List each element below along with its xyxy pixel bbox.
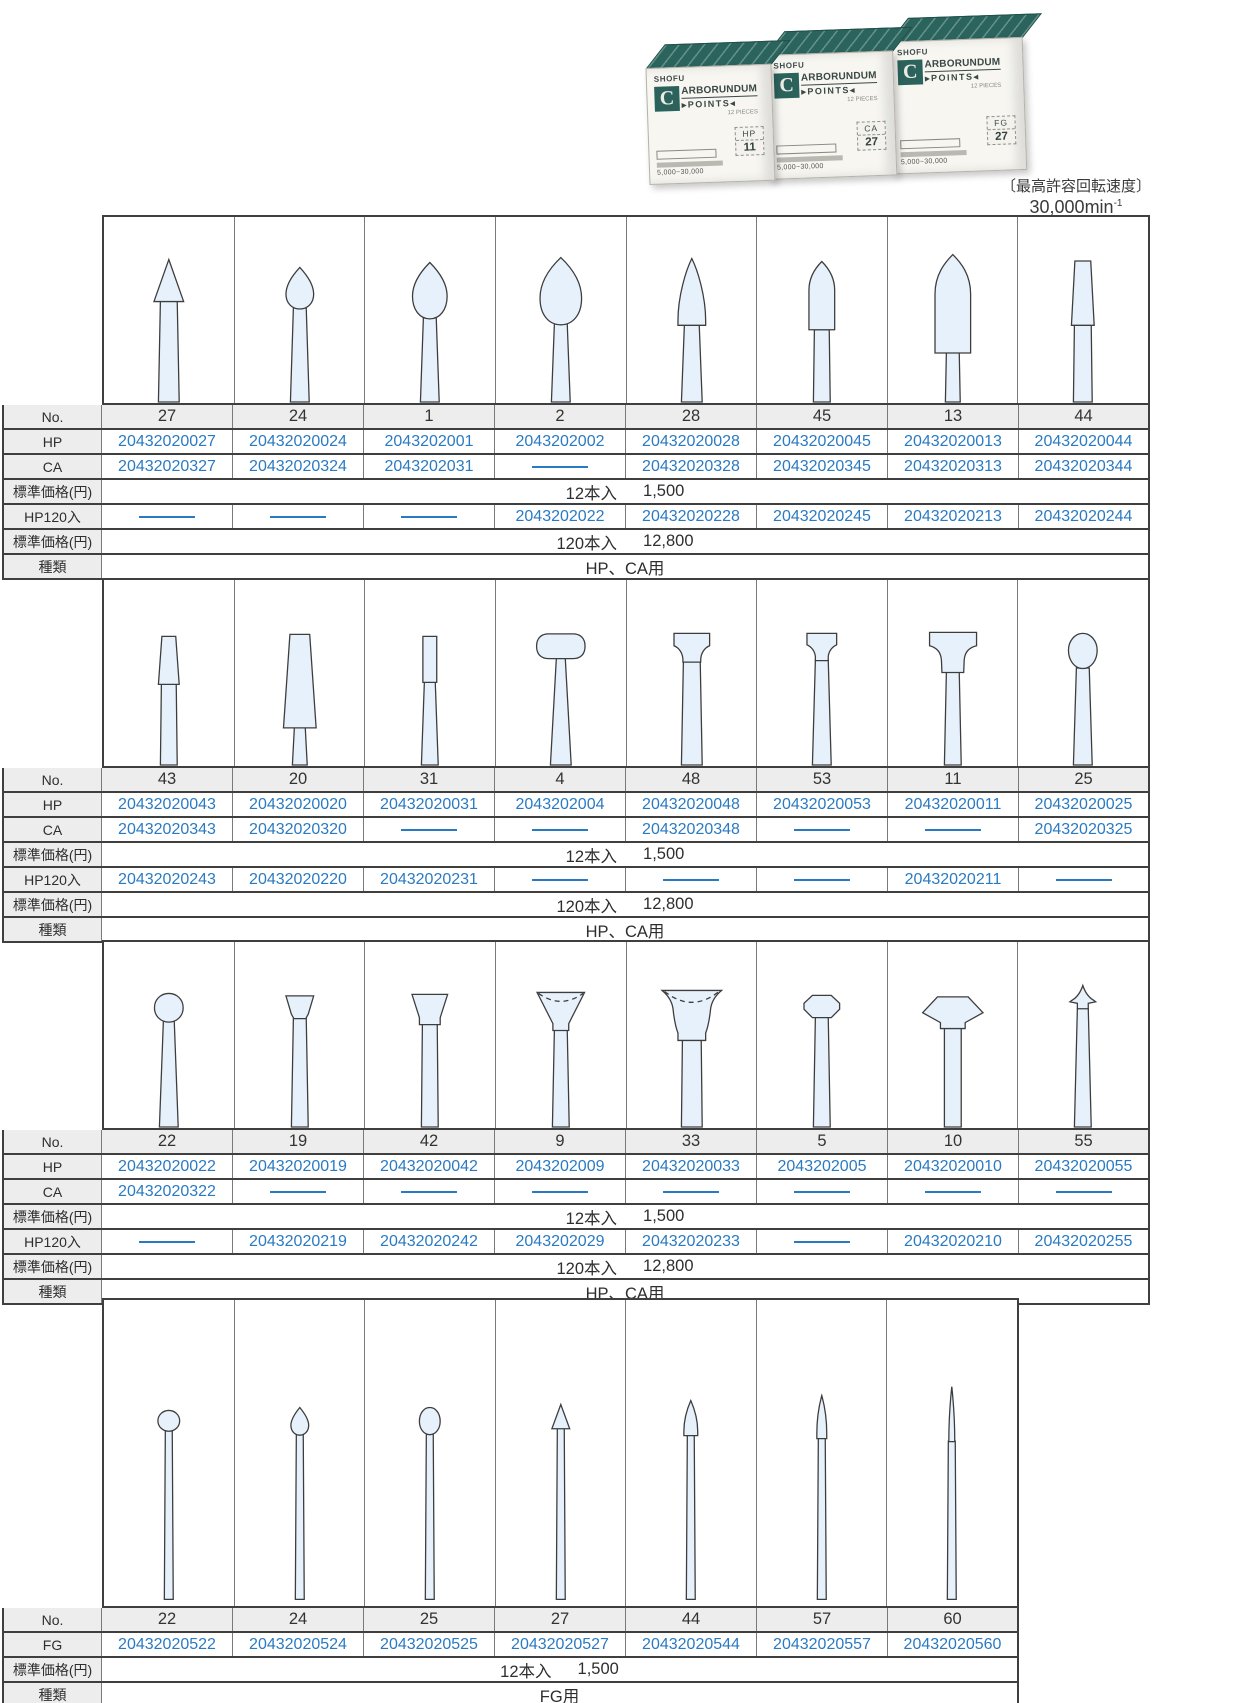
hp-code-cell: 20432020043 xyxy=(102,793,233,816)
hp120-code-cell: 20432020211 xyxy=(888,868,1019,891)
shape-cell xyxy=(626,1300,757,1606)
no-cell: 9 xyxy=(495,1130,626,1153)
kind-row-text: HP、CA用 xyxy=(586,918,665,942)
hp-code-cell: 20432020045 xyxy=(757,430,888,453)
hp120-code[interactable]: 20432020228 xyxy=(642,508,740,526)
ca-code-cell xyxy=(757,1180,888,1203)
no-cell: 10 xyxy=(888,1130,1019,1153)
row-label: 標準価格(円) xyxy=(2,530,102,553)
hp-code[interactable]: 20432020044 xyxy=(1035,433,1133,451)
shape-cell xyxy=(496,1300,627,1606)
price-12: 12本入1,500 xyxy=(102,1205,1150,1228)
row-label: HP xyxy=(2,430,102,453)
row-label: HP120入 xyxy=(2,1230,102,1253)
table-row: HP120入2043202021920432020242204320202920… xyxy=(2,1230,1150,1255)
hp120-code-cell: 20432020233 xyxy=(626,1230,757,1253)
table-row: 標準価格(円)12本入1,500 xyxy=(2,480,1150,505)
hp-code[interactable]: 20432020011 xyxy=(905,796,1002,814)
shape-cell xyxy=(235,217,366,403)
row-label: 標準価格(円) xyxy=(2,1205,102,1228)
hp-code-cell: 20432020033 xyxy=(626,1155,757,1178)
fg-code[interactable]: 20432020544 xyxy=(642,1636,740,1654)
shape-cell xyxy=(627,942,758,1128)
shape-cell xyxy=(104,1300,235,1606)
fgegg25-bur-icon xyxy=(365,1300,495,1606)
no-cell: 20 xyxy=(233,768,364,791)
price-120-text: 12,800 xyxy=(643,895,693,914)
hp-code-cell: 2043202009 xyxy=(495,1155,626,1178)
fg-code-cell: 20432020527 xyxy=(495,1633,626,1656)
ca-code-cell xyxy=(495,818,626,841)
no-cell: 57 xyxy=(757,1608,888,1631)
fgcone27-bur-icon xyxy=(496,1300,626,1606)
fgtaper57-bur-icon xyxy=(757,1300,887,1606)
bud24-bur-icon xyxy=(235,217,365,403)
shape-cell xyxy=(365,217,496,403)
hp-code[interactable]: 20432020033 xyxy=(642,1158,740,1176)
hp-code[interactable]: 20432020042 xyxy=(380,1158,478,1176)
taper44-bur-icon xyxy=(1018,217,1148,403)
hp-code-cell: 20432020044 xyxy=(1019,430,1150,453)
bud1-bur-icon xyxy=(365,217,495,403)
ca-code-cell xyxy=(495,455,626,478)
hp120-code-cell xyxy=(757,868,888,891)
usage-note-box xyxy=(776,144,836,155)
hp120-code[interactable]: 20432020242 xyxy=(380,1233,478,1251)
hp120-code[interactable]: 20432020231 xyxy=(380,871,478,889)
hp-code[interactable]: 2043202001 xyxy=(385,433,474,451)
fg-code[interactable]: 20432020527 xyxy=(511,1636,609,1654)
invcone19-bur-icon xyxy=(235,942,365,1128)
row-label: No. xyxy=(2,1608,102,1631)
hp-code[interactable]: 20432020022 xyxy=(118,1158,216,1176)
hp-code[interactable]: 20432020020 xyxy=(249,796,347,814)
table-row: 標準価格(円)12本入1,500 xyxy=(2,1205,1150,1230)
ca-code-cell: 20432020320 xyxy=(233,818,364,841)
hp120-code[interactable]: 20432020210 xyxy=(904,1233,1002,1251)
shape-cell xyxy=(104,942,235,1128)
box-title: ARBORUNDUM xyxy=(681,83,757,99)
price-12-text: 1,500 xyxy=(643,482,684,501)
hp120-code[interactable]: 20432020245 xyxy=(773,508,871,526)
box-logo-row: CARBORUNDUM▸POINTS◂12 PIECES xyxy=(654,83,765,119)
table-row: No.22242527445760 xyxy=(2,1608,1019,1633)
price-12-text: 12本入 xyxy=(500,1658,551,1682)
shape-cell xyxy=(757,1300,888,1606)
hp120-code[interactable]: 20432020213 xyxy=(904,508,1002,526)
no-cell: 55 xyxy=(1019,1130,1150,1153)
hp120-code[interactable]: 20432020211 xyxy=(905,871,1002,889)
row-label: HP xyxy=(2,793,102,816)
hp-code[interactable]: 20432020027 xyxy=(118,433,216,451)
fg-code[interactable]: 20432020560 xyxy=(904,1636,1002,1654)
bud2-bur-icon xyxy=(496,217,626,403)
hp120-code-cell xyxy=(757,1230,888,1253)
hp120-code-cell: 20432020210 xyxy=(888,1230,1019,1253)
usage-note-box xyxy=(900,138,960,149)
price-120-text: 120本入 xyxy=(557,1255,618,1279)
price-12: 12本入1,500 xyxy=(102,1658,1019,1681)
box-speed-range: 5,000~30,000 xyxy=(657,167,723,176)
box-usage-note: 5,000~30,000 xyxy=(656,148,723,176)
dash-placeholder xyxy=(1056,879,1112,881)
table-row: FG20432020522204320205242043202052520432… xyxy=(2,1633,1019,1658)
ca-code-cell: 20432020343 xyxy=(102,818,233,841)
hp-code-cell: 20432020025 xyxy=(1019,793,1150,816)
c-logo-icon: C xyxy=(774,73,800,99)
points-table-4: No.22242527445760FG204320205222043202052… xyxy=(2,1298,1019,1703)
dash-placeholder xyxy=(663,879,719,881)
ca-code-cell: 20432020325 xyxy=(1019,818,1150,841)
table-row: HP120入2043202024320432020220204320202312… xyxy=(2,868,1150,893)
hp120-code-cell: 2043202029 xyxy=(495,1230,626,1253)
no-cell: 19 xyxy=(233,1130,364,1153)
dash-placeholder xyxy=(925,829,981,831)
price-12-text: 12本入 xyxy=(566,1205,617,1229)
no-cell: 42 xyxy=(364,1130,495,1153)
hp120-code[interactable]: 2043202022 xyxy=(516,508,605,526)
shape-cell xyxy=(496,580,627,766)
box-brand: SHOFU xyxy=(654,71,764,84)
table-row: 種類FG用 xyxy=(2,1683,1019,1703)
box-title: ARBORUNDUM xyxy=(924,57,1000,73)
catalog-page: SHOFUCARBORUNDUM▸POINTS◂12 PIECES5,000~3… xyxy=(0,0,1250,1703)
dash-placeholder xyxy=(139,516,195,518)
cup9-bur-icon xyxy=(496,942,626,1128)
no-cell: 25 xyxy=(364,1608,495,1631)
hp-code[interactable]: 2043202005 xyxy=(778,1158,867,1176)
ca-code[interactable]: 2043202031 xyxy=(385,458,474,476)
box-speed-range: 5,000~30,000 xyxy=(777,162,843,171)
dash-placeholder xyxy=(794,1241,850,1243)
cup33-bur-icon xyxy=(627,942,757,1128)
ca-code-cell xyxy=(888,1180,1019,1203)
hp120-code[interactable]: 20432020219 xyxy=(249,1233,347,1251)
box-title-block: ARBORUNDUM▸POINTS◂12 PIECES xyxy=(801,70,878,105)
table-row: CA20432020343204320203202043202034820432… xyxy=(2,818,1150,843)
c-logo-icon: C xyxy=(897,59,923,85)
table-row: 種類HP、CA用 xyxy=(2,555,1150,580)
row-label: HP xyxy=(2,1155,102,1178)
product-box-ca: SHOFUCARBORUNDUM▸POINTS◂12 PIECES5,000~3… xyxy=(764,27,897,179)
row-label: CA xyxy=(2,1180,102,1203)
ca-code[interactable]: 20432020343 xyxy=(118,821,216,839)
hp-code-cell: 20432020022 xyxy=(102,1155,233,1178)
max-speed-note: 〔最高許容回転速度〕 30,000min-1 xyxy=(1000,175,1152,218)
table-row: No.432031448531125 xyxy=(2,768,1150,793)
hp-code[interactable]: 2043202002 xyxy=(516,433,605,451)
knob25-bur-icon xyxy=(1018,580,1148,766)
tbar11-bur-icon xyxy=(888,580,1018,766)
hp120-code-cell: 20432020243 xyxy=(102,868,233,891)
ca-code-cell: 20432020324 xyxy=(233,455,364,478)
hp-code[interactable]: 20432020045 xyxy=(773,433,871,451)
table-row: No.22194293351055 xyxy=(2,1130,1150,1155)
product-box-fg: SHOFUCARBORUNDUM▸POINTS◂12 PIECES5,000~3… xyxy=(888,14,1027,175)
hp120-code-cell: 20432020220 xyxy=(233,868,364,891)
hp-code[interactable]: 20432020043 xyxy=(118,796,216,814)
hp120-code[interactable]: 20432020243 xyxy=(118,871,216,889)
hp120-code[interactable]: 2043202029 xyxy=(516,1233,605,1251)
shape-cell xyxy=(887,1300,1017,1606)
ca-code-cell xyxy=(626,1180,757,1203)
usage-note-box xyxy=(656,149,716,160)
table-row: 標準価格(円)12本入1,500 xyxy=(2,843,1150,868)
box-pieces: 12 PIECES xyxy=(925,83,1001,92)
hp-code[interactable]: 20432020053 xyxy=(773,796,871,814)
box-type-code: HP xyxy=(736,127,763,141)
ca-code[interactable]: 20432020328 xyxy=(642,458,740,476)
hp-code[interactable]: 20432020048 xyxy=(642,796,740,814)
hp-code-cell: 20432020027 xyxy=(102,430,233,453)
no-cell: 48 xyxy=(626,768,757,791)
shape-cell xyxy=(627,580,758,766)
hp-code-cell: 20432020024 xyxy=(233,430,364,453)
ca-code-cell: 20432020322 xyxy=(102,1180,233,1203)
ca-code-cell xyxy=(1019,1180,1150,1203)
usage-note-line xyxy=(657,160,723,167)
hp120-code[interactable]: 20432020255 xyxy=(1035,1233,1133,1251)
cone27-bur-icon xyxy=(104,217,234,403)
hp120-code-cell xyxy=(102,1230,233,1253)
no-cell: 43 xyxy=(102,768,233,791)
ca-code-cell: 20432020327 xyxy=(102,455,233,478)
no-cell: 24 xyxy=(233,1608,364,1631)
hp120-code-cell: 20432020244 xyxy=(1019,505,1150,528)
shape-cell xyxy=(235,942,366,1128)
dash-placeholder xyxy=(794,879,850,881)
box-type-code: CA xyxy=(857,122,884,136)
hp120-code[interactable]: 20432020244 xyxy=(1035,508,1133,526)
no-cell: 22 xyxy=(102,1608,233,1631)
no-cell: 13 xyxy=(888,405,1019,428)
price-120-text: 12,800 xyxy=(643,532,693,551)
box-type-code: FG xyxy=(987,116,1014,130)
product-photo: SHOFUCARBORUNDUM▸POINTS◂12 PIECES5,000~3… xyxy=(642,13,1058,205)
ca-code[interactable]: 20432020344 xyxy=(1035,458,1133,476)
hp120-code-cell: 20432020228 xyxy=(626,505,757,528)
points-table-2: No.432031448531125HP20432020043204320200… xyxy=(2,578,1150,943)
no-cell: 44 xyxy=(626,1608,757,1631)
tbar53-bur-icon xyxy=(757,580,887,766)
hp120-code-cell: 20432020219 xyxy=(233,1230,364,1253)
no-cell: 31 xyxy=(364,768,495,791)
hp120-code[interactable]: 20432020220 xyxy=(249,871,347,889)
hp-code[interactable]: 20432020031 xyxy=(380,796,478,814)
ca-code[interactable]: 20432020322 xyxy=(118,1183,216,1201)
shape-cell xyxy=(365,1300,496,1606)
bullet45-bur-icon xyxy=(757,217,887,403)
kind-row-text: FG用 xyxy=(540,1683,579,1703)
fg-code[interactable]: 20432020525 xyxy=(380,1636,478,1654)
ca-code[interactable]: 20432020348 xyxy=(642,821,740,839)
tbar48-bur-icon xyxy=(627,580,757,766)
shape-cell xyxy=(757,942,888,1128)
ca-code[interactable]: 20432020327 xyxy=(118,458,216,476)
hp120-code-cell: 20432020242 xyxy=(364,1230,495,1253)
box-title: ARBORUNDUM xyxy=(801,70,877,86)
no-cell: 5 xyxy=(757,1130,888,1153)
kind-row: HP、CA用 xyxy=(102,918,1150,941)
box-front-face: SHOFUCARBORUNDUM▸POINTS◂12 PIECES5,000~3… xyxy=(889,37,1028,175)
hp-code[interactable]: 20432020055 xyxy=(1035,1158,1133,1176)
hp-code-cell: 2043202001 xyxy=(364,430,495,453)
price-12: 12本入1,500 xyxy=(102,480,1150,503)
row-label: 種類 xyxy=(2,1683,102,1703)
box-front-face: SHOFUCARBORUNDUM▸POINTS◂12 PIECES5,000~3… xyxy=(765,50,897,179)
ca-code-cell xyxy=(364,818,495,841)
box-usage-note: 5,000~30,000 xyxy=(776,143,843,171)
hp-code[interactable]: 20432020028 xyxy=(642,433,740,451)
max-speed-label: 〔最高許容回転速度〕 xyxy=(1000,175,1152,196)
hp120-code-cell: 20432020255 xyxy=(1019,1230,1150,1253)
shape-cell xyxy=(627,217,758,403)
shape-cell xyxy=(888,580,1019,766)
dash-placeholder xyxy=(663,1191,719,1193)
shape-strip xyxy=(102,215,1150,405)
price-12-text: 1,500 xyxy=(578,1660,619,1679)
fg-code-cell: 20432020560 xyxy=(888,1633,1019,1656)
ca-code[interactable]: 20432020345 xyxy=(773,458,871,476)
box-logo-row: CARBORUNDUM▸POINTS◂12 PIECES xyxy=(897,56,1016,92)
no-cell: 27 xyxy=(495,1608,626,1631)
shape-cell xyxy=(496,942,627,1128)
hp-code-cell: 2043202005 xyxy=(757,1155,888,1178)
flame28-bur-icon xyxy=(627,217,757,403)
ca-code-cell: 20432020348 xyxy=(626,818,757,841)
hp-code-cell: 2043202004 xyxy=(495,793,626,816)
hp-code[interactable]: 20432020024 xyxy=(249,433,347,451)
fg-code-cell: 20432020544 xyxy=(626,1633,757,1656)
price-120: 120本入12,800 xyxy=(102,530,1150,553)
dash-placeholder xyxy=(1056,1191,1112,1193)
ca-code[interactable]: 20432020324 xyxy=(249,458,347,476)
shape-strip xyxy=(102,1298,1019,1608)
table-row: HP20432020043204320200202043202003120432… xyxy=(2,793,1150,818)
shape-cell xyxy=(235,1300,366,1606)
shape-cell xyxy=(365,580,496,766)
ca-code-cell: 2043202031 xyxy=(364,455,495,478)
ca-code[interactable]: 20432020325 xyxy=(1035,821,1133,839)
ca-code-cell: 20432020313 xyxy=(888,455,1019,478)
hp-code[interactable]: 20432020019 xyxy=(249,1158,347,1176)
shape-cell xyxy=(757,580,888,766)
fg-code[interactable]: 20432020524 xyxy=(249,1636,347,1654)
usage-note-line xyxy=(777,155,843,162)
hp120-code[interactable]: 20432020233 xyxy=(642,1233,740,1251)
row-label: HP120入 xyxy=(2,868,102,891)
price-120-text: 12,800 xyxy=(643,1257,693,1276)
dash-placeholder xyxy=(270,516,326,518)
shape-cell xyxy=(104,580,235,766)
row-label: 標準価格(円) xyxy=(2,480,102,503)
shape-cell xyxy=(888,942,1019,1128)
hp-code[interactable]: 2043202009 xyxy=(516,1158,605,1176)
no-cell: 33 xyxy=(626,1130,757,1153)
product-box-hp: SHOFUCARBORUNDUM▸POINTS◂12 PIECES5,000~3… xyxy=(645,41,776,185)
fgneedle60-bur-icon xyxy=(887,1300,1017,1606)
hp-code[interactable]: 20432020025 xyxy=(1035,796,1133,814)
hp-code-cell: 20432020031 xyxy=(364,793,495,816)
row-label: No. xyxy=(2,1130,102,1153)
hp-code-cell: 20432020048 xyxy=(626,793,757,816)
ca-code[interactable]: 20432020313 xyxy=(904,458,1002,476)
hp-code-cell: 20432020055 xyxy=(1019,1155,1150,1178)
hp-code-cell: 20432020028 xyxy=(626,430,757,453)
box-pieces: 12 PIECES xyxy=(802,96,878,105)
hp-code[interactable]: 20432020010 xyxy=(904,1158,1002,1176)
hp-code-cell: 20432020019 xyxy=(233,1155,364,1178)
row-label: 標準価格(円) xyxy=(2,843,102,866)
arrow55-bur-icon xyxy=(1018,942,1148,1128)
fg-code-cell: 20432020524 xyxy=(233,1633,364,1656)
no-cell: 1 xyxy=(364,405,495,428)
fg-code[interactable]: 20432020522 xyxy=(118,1636,216,1654)
table-row: 標準価格(円)120本入12,800 xyxy=(2,530,1150,555)
ca-code-cell: 20432020344 xyxy=(1019,455,1150,478)
table-row: No.27241228451344 xyxy=(2,405,1150,430)
c-logo-icon: C xyxy=(654,86,680,112)
dash-placeholder xyxy=(270,1191,326,1193)
no-cell: 27 xyxy=(102,405,233,428)
hp-code[interactable]: 2043202004 xyxy=(516,796,605,814)
price-120: 120本入12,800 xyxy=(102,1255,1150,1278)
table-row: 標準価格(円)120本入12,800 xyxy=(2,1255,1150,1280)
hp-code[interactable]: 20432020013 xyxy=(904,433,1002,451)
table-row: 標準価格(円)12本入1,500 xyxy=(2,1658,1019,1683)
ca-code[interactable]: 20432020320 xyxy=(249,821,347,839)
dash-placeholder xyxy=(139,1241,195,1243)
table-row: HP20432020027204320200242043202001204320… xyxy=(2,430,1150,455)
hp-code-cell: 20432020042 xyxy=(364,1155,495,1178)
hp120-code-cell xyxy=(102,505,233,528)
kind-row: HP、CA用 xyxy=(102,555,1150,578)
cyl31-bur-icon xyxy=(365,580,495,766)
ca-code-cell xyxy=(757,818,888,841)
row-label: No. xyxy=(2,768,102,791)
price-12: 12本入1,500 xyxy=(102,843,1150,866)
box-type-number: 27 xyxy=(858,135,885,150)
fg-code[interactable]: 20432020557 xyxy=(773,1636,871,1654)
box-front-face: SHOFUCARBORUNDUM▸POINTS◂12 PIECES5,000~3… xyxy=(645,64,775,185)
hp120-code-cell xyxy=(495,868,626,891)
no-cell: 60 xyxy=(888,1608,1019,1631)
fg-code-cell: 20432020557 xyxy=(757,1633,888,1656)
table-row: HP20432020022204320200192043202004220432… xyxy=(2,1155,1150,1180)
dash-placeholder xyxy=(925,1191,981,1193)
fgbud24-bur-icon xyxy=(235,1300,365,1606)
dash-placeholder xyxy=(401,829,457,831)
price-12-text: 1,500 xyxy=(643,1207,684,1226)
fgball22-bur-icon xyxy=(104,1300,234,1606)
fg-code-cell: 20432020522 xyxy=(102,1633,233,1656)
hp120-code-cell: 20432020231 xyxy=(364,868,495,891)
box-pieces: 12 PIECES xyxy=(682,109,758,118)
shape-cell xyxy=(104,217,235,403)
kind-row-text: HP、CA用 xyxy=(586,555,665,579)
box-usage-note: 5,000~30,000 xyxy=(900,138,967,166)
no-cell: 53 xyxy=(757,768,888,791)
hp120-code-cell xyxy=(1019,868,1150,891)
box-type-label: HP11 xyxy=(735,126,765,156)
hp-code-cell: 2043202002 xyxy=(495,430,626,453)
hex5-bur-icon xyxy=(757,942,887,1128)
price-12-text: 12本入 xyxy=(566,480,617,504)
row-label: 種類 xyxy=(2,918,102,941)
dash-placeholder xyxy=(794,829,850,831)
dash-placeholder xyxy=(794,1191,850,1193)
table-row: CA20432020327204320203242043202031204320… xyxy=(2,455,1150,480)
